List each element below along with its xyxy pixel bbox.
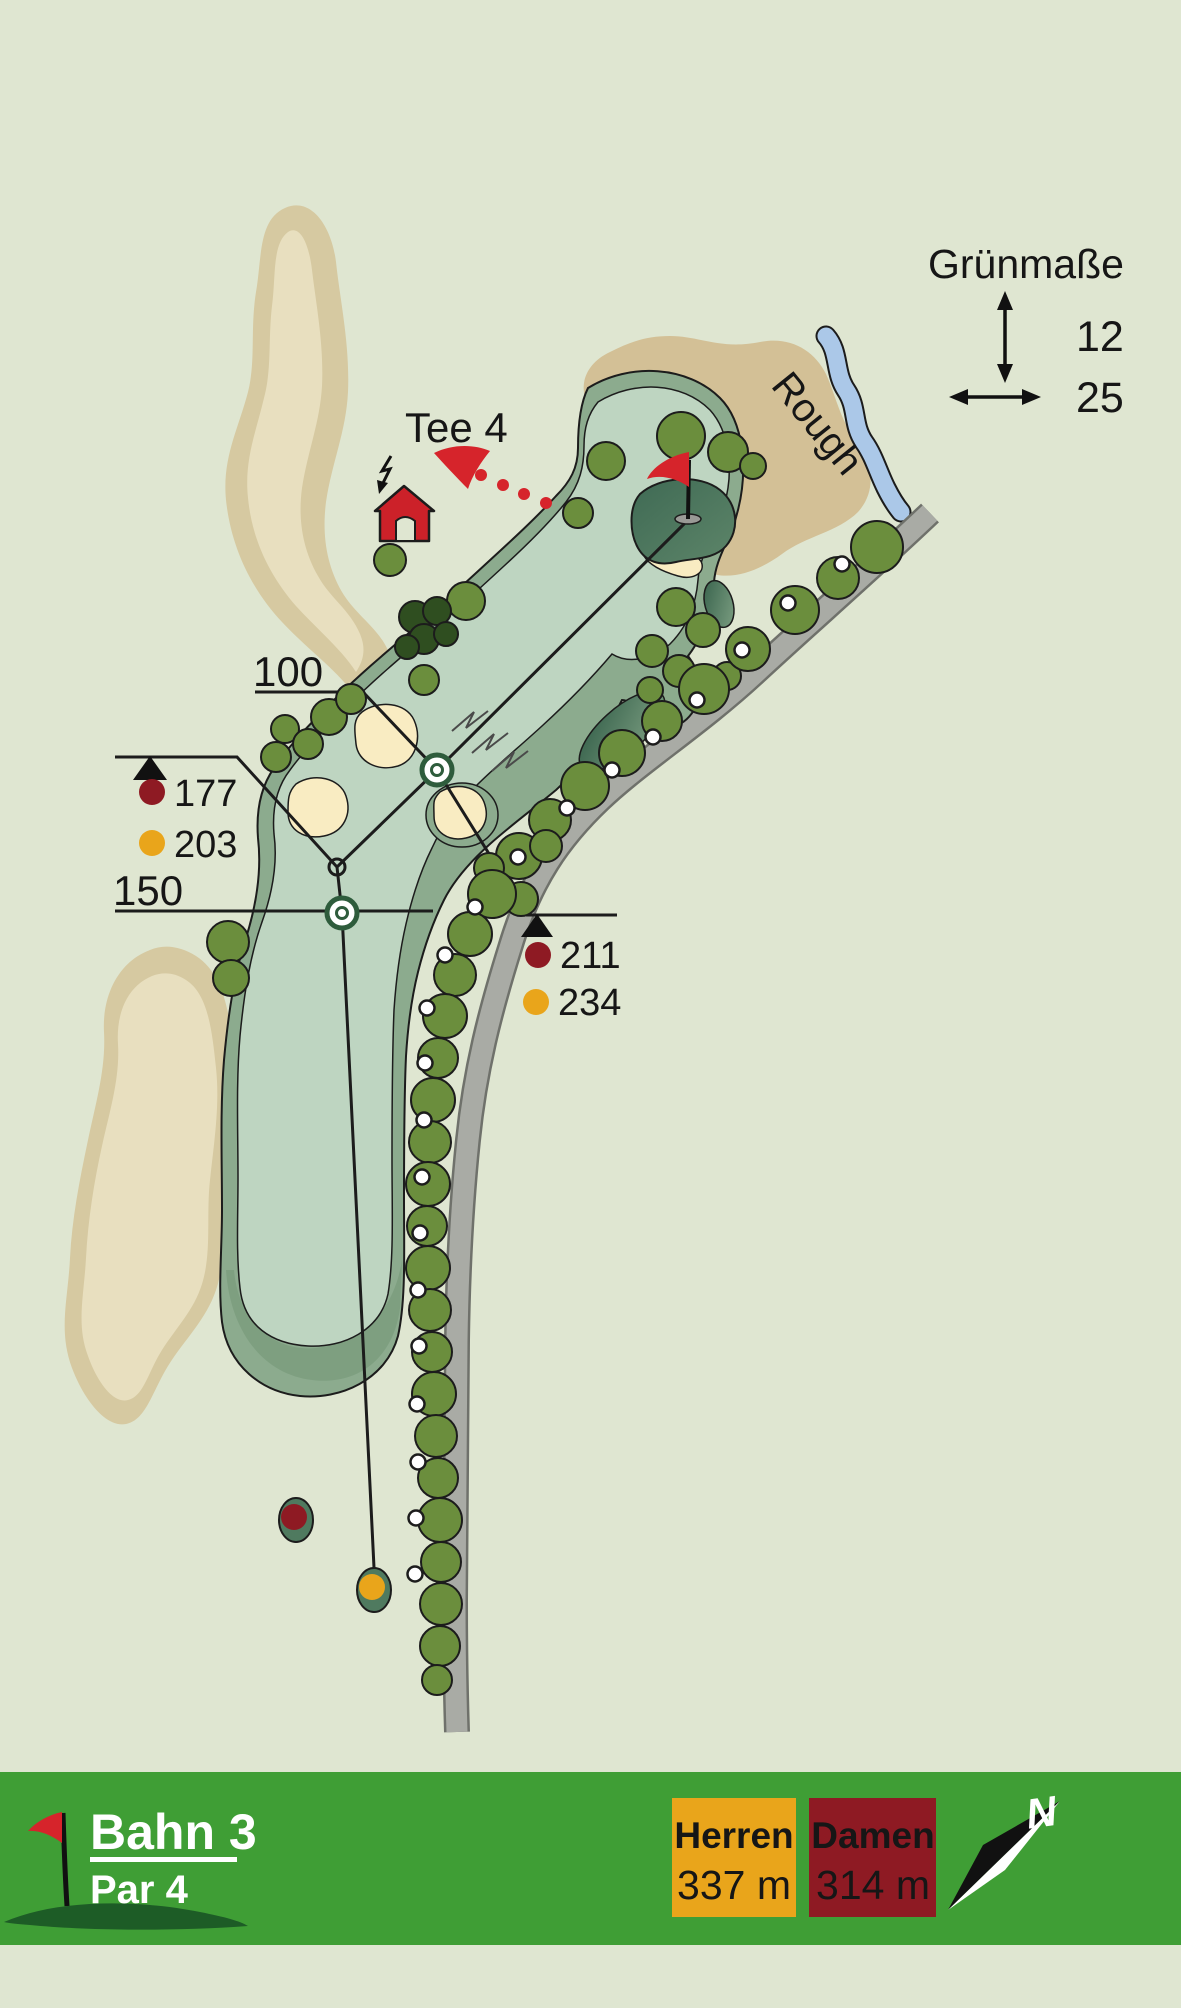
tree <box>406 1162 450 1206</box>
carry-right-damen-value: 211 <box>560 935 621 977</box>
herren-distance: 337 m <box>677 1862 791 1908</box>
tree <box>530 830 562 862</box>
carry-right-herren-value: 234 <box>558 982 621 1024</box>
tree <box>407 1206 447 1246</box>
distance-150-label: 150 <box>113 867 183 914</box>
green-depth-value: 12 <box>1076 313 1124 361</box>
carry-left-herren-value: 203 <box>174 824 237 866</box>
tree <box>409 1121 451 1163</box>
bunker <box>434 787 486 839</box>
oob-stake <box>420 1001 435 1016</box>
tree <box>420 1583 462 1625</box>
oob-stake <box>411 1455 426 1470</box>
oob-stake <box>418 1056 433 1071</box>
tree <box>637 677 663 703</box>
oob-stake <box>411 1283 426 1298</box>
damen-distance: 314 m <box>816 1862 930 1908</box>
oob-stake <box>511 850 526 865</box>
oob-stake <box>735 643 750 658</box>
damen-distance-box: Damen 314 m <box>809 1798 936 1917</box>
oob-stake <box>412 1339 427 1354</box>
oob-stake <box>468 900 483 915</box>
oob-stake <box>835 557 850 572</box>
tree <box>293 729 323 759</box>
tree <box>448 912 492 956</box>
oob-stake <box>408 1567 423 1582</box>
tree <box>261 742 291 772</box>
tree <box>447 582 485 620</box>
damen-label: Damen <box>811 1815 934 1856</box>
course-map: 177 203 211 234 <box>0 0 1181 2008</box>
green-width-value: 25 <box>1076 374 1124 422</box>
oob-stake <box>413 1226 428 1241</box>
damen-dot-icon <box>525 942 551 968</box>
herren-dot-icon <box>523 989 549 1015</box>
tree <box>771 586 819 634</box>
oob-stake <box>438 948 453 963</box>
herren-label: Herren <box>674 1815 793 1856</box>
tree <box>418 1498 462 1542</box>
tree <box>740 453 766 479</box>
tree <box>409 665 439 695</box>
tree <box>686 613 720 647</box>
herren-dot-icon <box>139 830 165 856</box>
hole-title: Bahn 3 <box>90 1804 257 1860</box>
hole-guide-page: 177 203 211 234 <box>0 0 1181 2008</box>
tree <box>213 960 249 996</box>
distance-100-label: 100 <box>253 648 323 695</box>
bush <box>434 622 458 646</box>
bush <box>423 597 451 625</box>
oob-stake <box>409 1511 424 1526</box>
oob-stake <box>560 801 575 816</box>
tree <box>657 412 705 460</box>
bush <box>395 635 419 659</box>
oob-stake <box>690 693 705 708</box>
tree <box>679 664 729 714</box>
par-label: Par 4 <box>90 1868 189 1912</box>
bunker <box>355 704 418 767</box>
carry-left-damen-value: 177 <box>174 773 237 815</box>
tee4-label: Tee 4 <box>405 404 508 451</box>
tree <box>563 498 593 528</box>
tree <box>336 684 366 714</box>
oob-stake <box>415 1170 430 1185</box>
oob-stake <box>410 1397 425 1412</box>
damen-dot-icon <box>139 779 165 805</box>
hole-title-underline <box>90 1857 237 1862</box>
oob-stake <box>417 1113 432 1128</box>
tree <box>422 1665 452 1695</box>
tree <box>851 521 903 573</box>
tree <box>636 635 668 667</box>
footer-bar: Bahn 3 Par 4 Herren 337 m Damen 314 m N <box>0 1772 1181 1945</box>
bunker <box>288 778 348 837</box>
tree <box>207 921 249 963</box>
oob-stake <box>605 763 620 778</box>
tree <box>421 1542 461 1582</box>
oob-stake <box>646 730 661 745</box>
tree <box>374 544 406 576</box>
legend-title: Grünmaße <box>928 241 1124 287</box>
tree <box>420 1626 460 1666</box>
herren-distance-box: Herren 337 m <box>672 1798 796 1917</box>
oob-stake <box>781 596 796 611</box>
tree <box>415 1415 457 1457</box>
tree <box>587 442 625 480</box>
